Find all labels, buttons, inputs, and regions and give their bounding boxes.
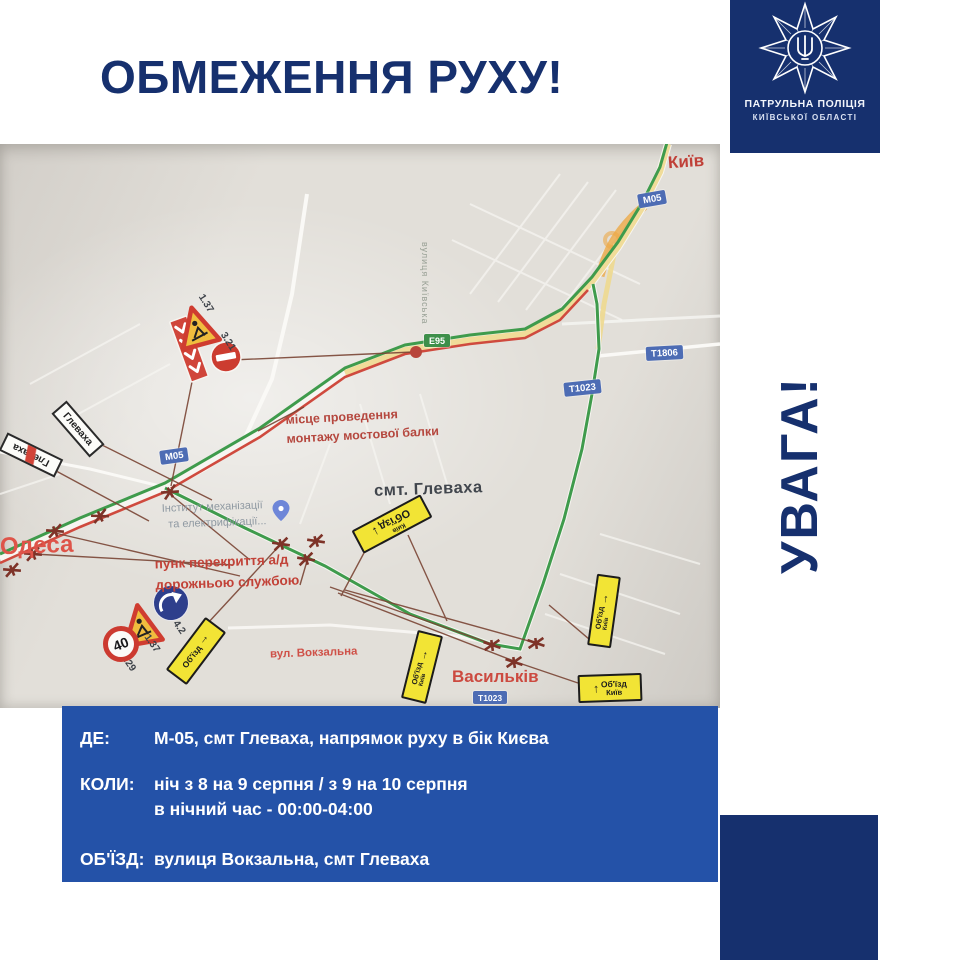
map-photo: Київ Одеса Васильків смт. Глеваха вул. В… [0, 144, 720, 708]
route-open-green [0, 144, 668, 554]
page-title: ОБМЕЖЕННЯ РУХУ! [100, 50, 563, 104]
info-label-detour: ОБ'ЇЗД: [80, 849, 144, 870]
info-label-where: ДЕ: [80, 728, 110, 749]
detour-arrow-icon: ↑ [199, 633, 211, 646]
org-region: КИЇВСЬКОЇ ОБЛАСТІ [753, 113, 858, 122]
info-value-detour: вулиця Вокзальна, смт Глеваха [154, 849, 429, 870]
attention-text: УВАГА! [770, 335, 830, 615]
detour-arrow-icon: ↑ [421, 648, 429, 661]
poi-label: Інститут механізації та електрифікації..… [161, 497, 266, 533]
city-label-kyiv: Київ [667, 151, 704, 173]
info-label-when: КОЛИ: [80, 774, 135, 795]
detour-arrow-icon: ↑ [602, 592, 609, 605]
settlement-label: смт. Глеваха [374, 478, 483, 501]
city-label-vasylkiv: Васильків [452, 667, 539, 687]
road-badge-t1023-bottom: Т1023 [473, 691, 507, 704]
city-label-odesa: Одеса [0, 531, 74, 562]
speed-limit-sign: 40 [103, 626, 139, 662]
police-brand-block: ПАТРУЛЬНА ПОЛІЦІЯ КИЇВСЬКОЇ ОБЛАСТІ [730, 0, 880, 153]
road-badge-t1806: Т1806 [646, 345, 684, 361]
info-value-when: ніч з 8 на 9 серпня / з 9 на 10 серпня [154, 774, 468, 795]
detour-sign-4: ↑ Об'їзд Київ [578, 673, 643, 703]
police-star-icon [757, 0, 853, 96]
street-label-kyivska: вулиця Київська [420, 242, 430, 334]
road-badge-e95: Е95 [424, 334, 450, 347]
detour-arrow-icon: ↑ [593, 681, 599, 695]
info-value-when-2: в нічний час - 00:00-04:00 [154, 799, 373, 820]
closure-point-note: пунк перекриття а/д дорожньою службою [154, 549, 299, 596]
bridge-works-note: місце проведення монтажу мостової балки [285, 403, 439, 449]
info-value-where: М-05, смт Глеваха, напрямок руху в бік К… [154, 728, 549, 749]
closure-point-dot [410, 346, 422, 358]
poster: ОБМЕЖЕННЯ РУХУ! ПАТРУЛЬНА ПОЛІЦІЯ КИЇВСЬ… [0, 0, 960, 960]
info-panel: ДЕ: М-05, смт Глеваха, напрямок руху в б… [62, 706, 718, 882]
map-pin-icon [273, 500, 290, 521]
org-name: ПАТРУЛЬНА ПОЛІЦІЯ [744, 98, 865, 110]
corner-block [720, 815, 878, 960]
